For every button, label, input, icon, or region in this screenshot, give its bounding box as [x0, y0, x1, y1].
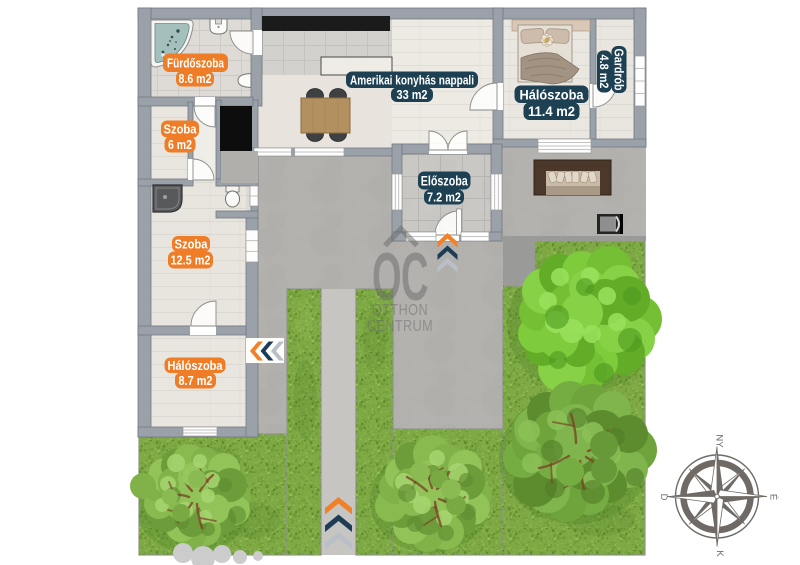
svg-text:D: D [658, 494, 669, 501]
svg-text:12.5 m2: 12.5 m2 [171, 254, 211, 268]
svg-text:É: É [768, 494, 779, 500]
svg-text:Amerikai konyhás nappali: Amerikai konyhás nappali [350, 72, 474, 87]
svg-text:8.7 m2: 8.7 m2 [179, 374, 213, 388]
svg-text:CENTRUM: CENTRUM [367, 318, 433, 335]
svg-text:OTTHON: OTTHON [372, 302, 428, 319]
svg-text:Fürdőszoba: Fürdőszoba [167, 55, 225, 70]
svg-text:Hálószoba: Hálószoba [520, 86, 584, 102]
svg-text:Szoba: Szoba [175, 237, 209, 252]
svg-text:33 m2: 33 m2 [397, 88, 428, 102]
svg-text:NY: NY [714, 434, 725, 448]
svg-text:6 m2: 6 m2 [168, 138, 192, 152]
svg-text:Szoba: Szoba [164, 122, 198, 137]
svg-text:4.8 m2: 4.8 m2 [597, 55, 611, 89]
svg-text:Hálószoba: Hálószoba [168, 359, 224, 373]
svg-text:7.2 m2: 7.2 m2 [427, 190, 461, 205]
svg-text:K: K [714, 550, 725, 557]
svg-text:11.4 m2: 11.4 m2 [528, 104, 575, 119]
svg-text:8.6 m2: 8.6 m2 [179, 72, 212, 86]
svg-text:Gardrób: Gardrób [612, 49, 626, 91]
svg-text:Előszoba: Előszoba [421, 173, 468, 188]
